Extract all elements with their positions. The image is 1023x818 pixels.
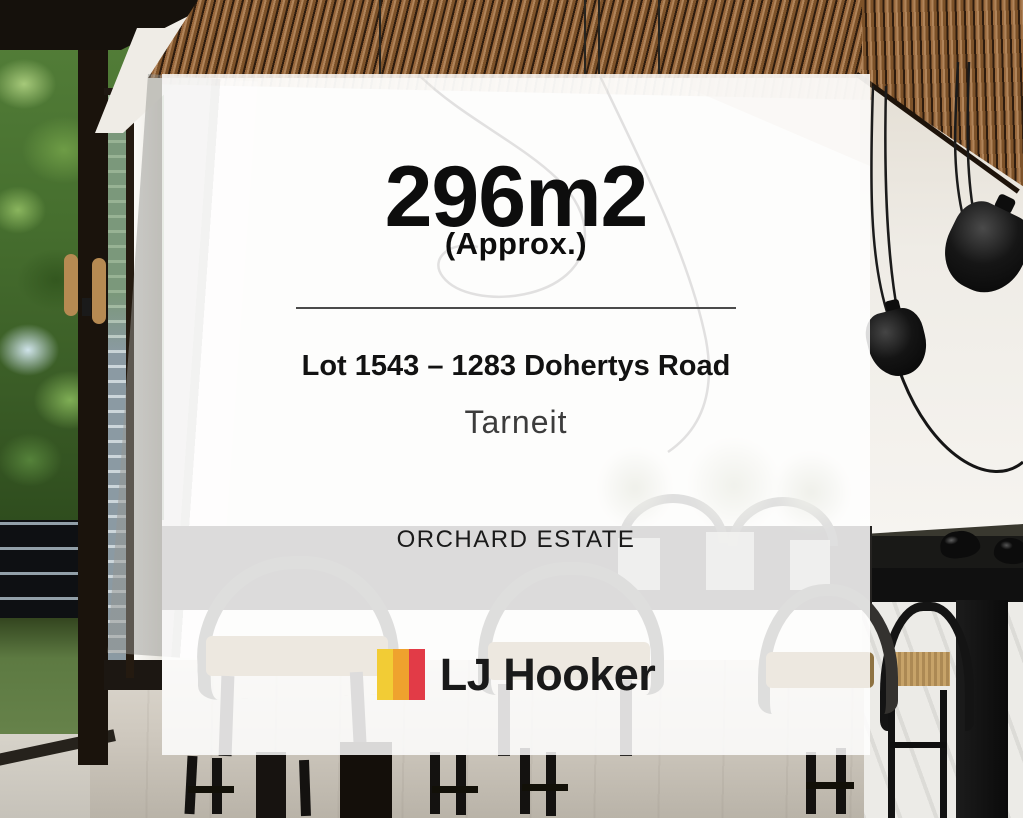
divider-line [296,307,736,309]
suburb-name: Tarneit [162,404,870,441]
estate-name: ORCHARD ESTATE [162,526,870,554]
chair-stretcher [806,782,854,789]
chair-leg [836,748,846,814]
brand-name: LJ Hooker [440,652,656,697]
real-estate-flyer: 296m2 (Approx.) Lot 1543 – 1283 Dohertys… [0,0,1023,818]
chair-leg [520,748,530,814]
chair-leg [299,760,311,816]
logo-stripe-yellow [377,649,393,700]
chair-leg [888,695,895,818]
chair-stretcher [522,784,568,791]
info-card: 296m2 (Approx.) Lot 1543 – 1283 Dohertys… [162,74,870,755]
chair-stretcher [188,786,234,793]
chair-stretcher [890,742,946,748]
logo-stripe-orange [393,649,409,700]
door-frame-stile [78,25,108,765]
logo-stripe-red [409,649,425,700]
address-line: Lot 1543 – 1283 Dohertys Road [162,350,870,383]
chair-leg [940,690,947,818]
lj-hooker-logo: LJ Hooker [162,646,870,702]
land-size-qualifier: (Approx.) [162,226,870,262]
door-lock [82,298,91,316]
door-handle-inner [92,258,106,324]
door-handle-outer [64,254,78,316]
table-leg [256,752,286,818]
chair-stretcher [432,786,478,793]
grass-patch [0,618,88,734]
lj-hooker-logo-mark-icon [377,649,425,700]
chair-leg [430,752,440,814]
chair-leg [456,755,466,815]
